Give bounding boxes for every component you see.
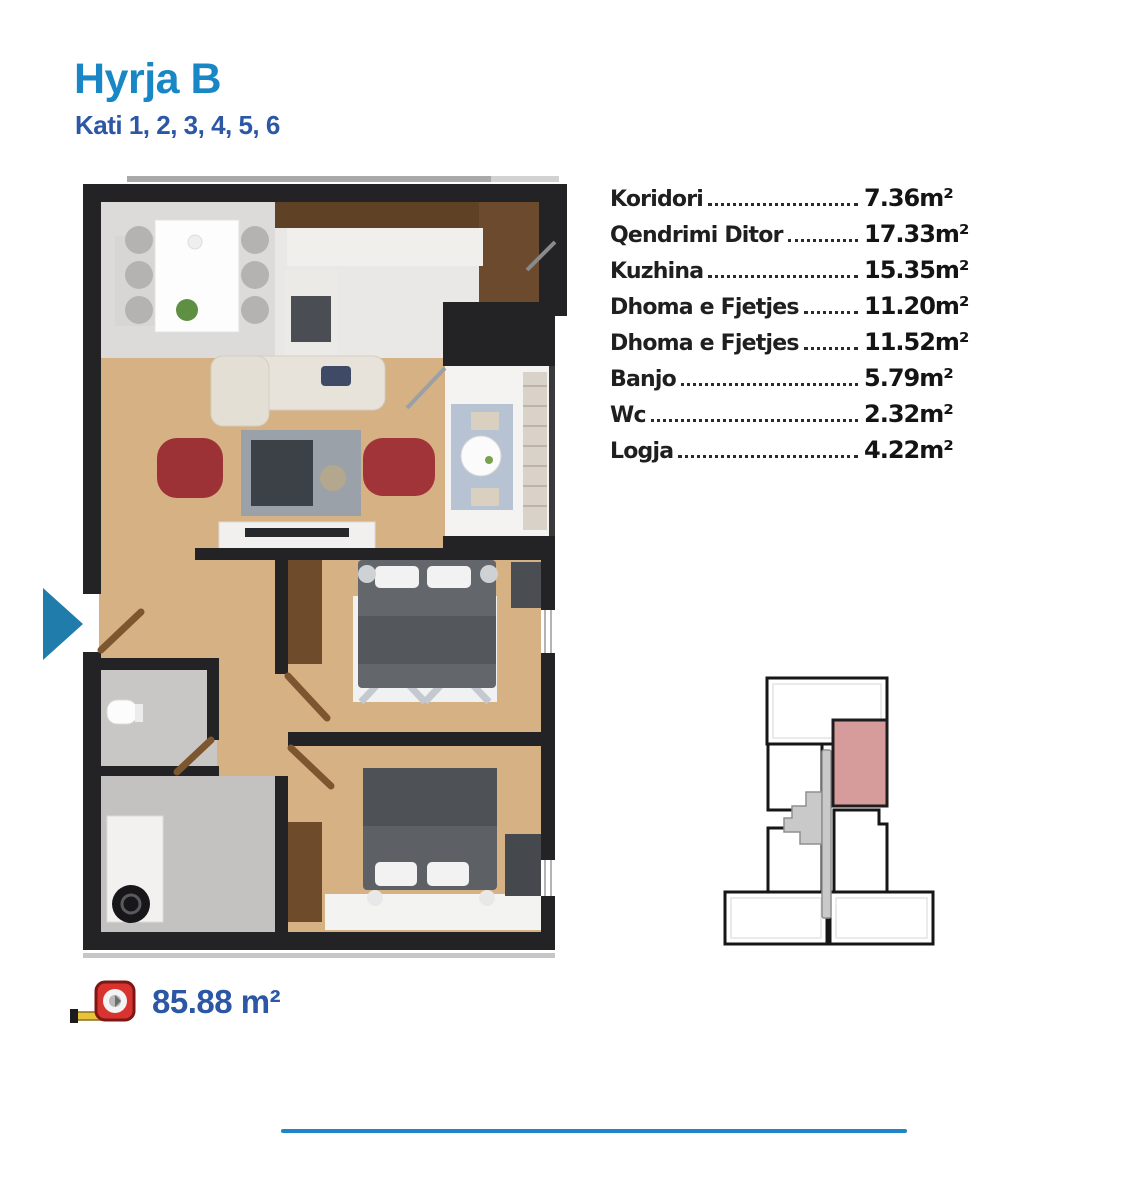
- room-row: Koridori 7.36m²: [610, 176, 962, 212]
- room-area: 2.32m²: [864, 400, 962, 428]
- leader-dots: [804, 311, 858, 314]
- room-area: 7.36m²: [864, 184, 962, 212]
- room-area: 11.52m²: [864, 328, 962, 356]
- leader-dots: [708, 203, 858, 206]
- leader-dots: [651, 419, 858, 422]
- highlighted-unit: [833, 720, 887, 806]
- room-area: 5.79m²: [864, 364, 962, 392]
- room-area: 17.33m²: [864, 220, 962, 248]
- room-row: Dhoma e Fjetjes 11.20m²: [610, 284, 962, 320]
- room-row: Kuzhina 15.35m²: [610, 248, 962, 284]
- room-name: Logja: [610, 439, 673, 464]
- page-title: Hyrja B: [74, 55, 221, 104]
- room-name: Banjo: [610, 367, 676, 392]
- page-subtitle: Kati 1, 2, 3, 4, 5, 6: [75, 110, 280, 141]
- bottom-divider-line: [281, 1129, 907, 1133]
- room-row: Logja 4.22m²: [610, 428, 962, 464]
- leader-dots: [681, 383, 858, 386]
- room-name: Kuzhina: [610, 259, 703, 284]
- room-name: Qendrimi Ditor: [610, 223, 783, 248]
- room-row: Dhoma e Fjetjes 11.52m²: [610, 320, 962, 356]
- room-name: Koridori: [610, 187, 703, 212]
- room-row: Qendrimi Ditor 17.33m²: [610, 212, 962, 248]
- leader-dots: [678, 455, 858, 458]
- total-area: 85.88 m²: [70, 976, 280, 1028]
- leader-dots: [708, 275, 858, 278]
- tape-measure-icon: [70, 976, 140, 1028]
- room-area-list: Koridori 7.36m² Qendrimi Ditor 17.33m² K…: [610, 176, 962, 464]
- room-row: Banjo 5.79m²: [610, 356, 962, 392]
- room-area: 11.20m²: [864, 292, 962, 320]
- leader-dots: [788, 239, 858, 242]
- building-position-map: [722, 674, 936, 948]
- leader-dots: [804, 347, 858, 350]
- room-name: Dhoma e Fjetjes: [610, 295, 799, 320]
- room-row: Wc 2.32m²: [610, 392, 962, 428]
- room-name: Dhoma e Fjetjes: [610, 331, 799, 356]
- floor-plan-image: [75, 176, 567, 962]
- total-area-value: 85.88 m²: [152, 983, 280, 1021]
- room-name: Wc: [610, 403, 646, 428]
- room-area: 4.22m²: [864, 436, 962, 464]
- room-area: 15.35m²: [864, 256, 962, 284]
